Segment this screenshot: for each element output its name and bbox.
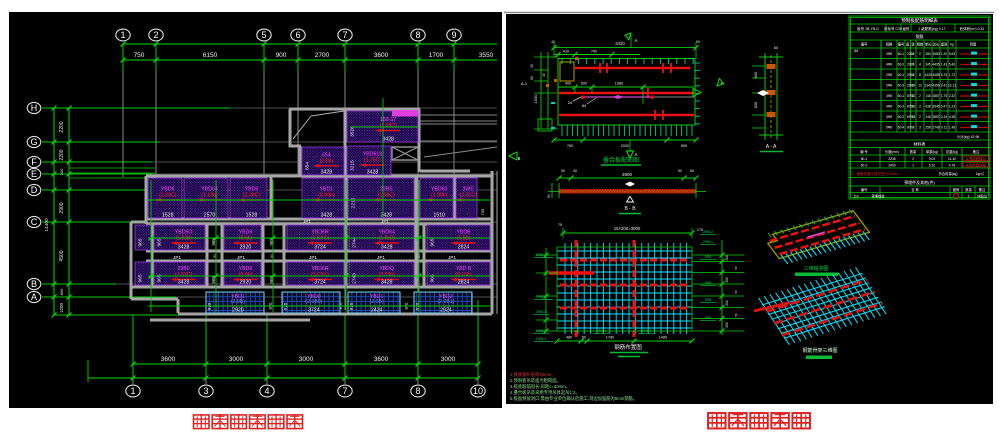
svg-text:4.38: 4.38 [949, 115, 955, 119]
svg-text:(8.6b): (8.6b) [239, 272, 253, 278]
svg-text:(1.09b): (1.09b) [431, 192, 448, 198]
svg-text:小计(kg) 42.96: 小计(kg) 42.96 [957, 134, 980, 139]
svg-text:50: 50 [734, 290, 738, 294]
svg-text:60-2: 60-2 [898, 115, 905, 119]
svg-text:3Φ8: 3Φ8 [886, 94, 892, 98]
svg-text:750: 750 [134, 52, 145, 59]
svg-text:(2.0B): (2.0B) [231, 299, 245, 305]
svg-text:8: 8 [415, 30, 420, 40]
svg-text:15×200=3000: 15×200=3000 [614, 226, 641, 231]
svg-text:50: 50 [582, 336, 586, 340]
svg-text:2824: 2824 [458, 280, 470, 286]
svg-text:编号: 编号 [861, 42, 868, 47]
svg-text:900: 900 [276, 52, 287, 59]
svg-text:1.20: 1.20 [941, 52, 947, 56]
svg-text:2: 2 [919, 94, 921, 98]
svg-text:J14: J14 [853, 195, 858, 199]
svg-text:2824: 2824 [458, 245, 470, 251]
svg-text:3000: 3000 [229, 356, 244, 363]
svg-text:1.48: 1.48 [949, 126, 955, 130]
svg-text:5Φ8: 5Φ8 [886, 126, 892, 130]
svg-text:(1.32b): (1.32b) [175, 236, 192, 242]
svg-text:(2.08C): (2.08C) [243, 192, 261, 198]
svg-text:90: 90 [561, 169, 565, 173]
svg-text:12.11: 12.11 [948, 84, 956, 88]
svg-text:2Φ8: 2Φ8 [886, 73, 892, 77]
svg-text:40: 40 [573, 169, 577, 173]
svg-text:2920: 2920 [240, 245, 252, 251]
svg-text:2746: 2746 [932, 126, 939, 130]
svg-text:3215: 3215 [350, 160, 356, 171]
svg-text:1480: 1480 [659, 336, 667, 340]
svg-text:2700: 2700 [315, 52, 330, 59]
svg-text:200: 200 [725, 300, 729, 306]
svg-text:3.板底筋锚固长,间距c=40mm。: 3.板底筋锚固长,间距c=40mm。 [510, 383, 570, 390]
svg-text:5.40: 5.40 [949, 63, 955, 67]
svg-text:10: 10 [473, 386, 483, 396]
svg-text:60: 60 [774, 45, 779, 50]
svg-text:名 称: 名 称 [911, 187, 919, 192]
svg-text:40: 40 [542, 73, 546, 77]
svg-text:60: 60 [530, 76, 534, 80]
svg-text:2Φ8: 2Φ8 [705, 316, 712, 320]
svg-text:5: 5 [913, 52, 915, 56]
svg-text:2Φ8-1: 2Φ8-1 [536, 310, 547, 314]
svg-text:2924: 2924 [440, 308, 452, 314]
svg-text:75: 75 [558, 223, 562, 227]
svg-text:长度(mm): 长度(mm) [885, 149, 899, 154]
svg-text:60-2: 60-2 [861, 163, 868, 167]
svg-text:1: 1 [912, 163, 914, 167]
svg-text:1.板底保护层厚15mm。: 1.板底保护层厚15mm。 [510, 371, 556, 378]
svg-text:60-1: 60-1 [898, 73, 905, 77]
svg-text:(2.0B0): (2.0B0) [305, 299, 322, 305]
svg-text:4560: 4560 [932, 52, 939, 56]
svg-text:JP1: JP1 [237, 255, 245, 260]
svg-text:2Φ8-2: 2Φ8-2 [536, 295, 547, 299]
svg-text:2215: 2215 [351, 197, 357, 208]
svg-text:965: 965 [430, 238, 436, 246]
svg-text:1342: 1342 [924, 84, 931, 88]
svg-text:kg/㎡: kg/㎡ [976, 171, 984, 176]
svg-text:90: 90 [696, 40, 700, 44]
svg-text:1200: 1200 [59, 302, 64, 313]
svg-text:根数: 根数 [917, 42, 924, 47]
svg-text:板号 1B-YB-D: 板号 1B-YB-D [857, 26, 879, 31]
svg-text:40: 40 [551, 40, 555, 44]
svg-text:A: A [635, 38, 638, 43]
svg-text:1780: 1780 [606, 336, 614, 340]
svg-text:2857: 2857 [932, 94, 939, 98]
svg-text:2Φ8: 2Φ8 [705, 281, 712, 285]
svg-text:6150: 6150 [203, 52, 218, 59]
svg-text:2744: 2744 [352, 237, 358, 248]
svg-text:2743: 2743 [352, 273, 358, 284]
svg-text:3000: 3000 [441, 356, 456, 363]
svg-text:965: 965 [430, 274, 436, 282]
svg-text:5: 5 [913, 73, 915, 77]
svg-text:3Φ8: 3Φ8 [886, 115, 892, 119]
svg-text:砼体积(m³) 0.31: 砼体积(m³) 0.31 [960, 26, 985, 31]
svg-text:2900: 2900 [59, 202, 65, 213]
svg-text:(1.32C): (1.32C) [175, 272, 193, 278]
svg-text:11.42: 11.42 [948, 157, 956, 161]
svg-text:2: 2 [912, 157, 914, 161]
svg-text:3428: 3428 [382, 137, 394, 143]
svg-text:详图见: 详图见 [977, 194, 988, 199]
svg-text:5.63: 5.63 [949, 52, 955, 56]
svg-text:编号: 编号 [861, 187, 868, 192]
svg-text:2Φ8-1: 2Φ8-1 [536, 337, 547, 341]
svg-text:3528: 3528 [350, 126, 356, 137]
svg-text:2424: 2424 [371, 308, 383, 314]
svg-text:3600: 3600 [374, 356, 389, 363]
svg-text:1528: 1528 [246, 213, 258, 219]
svg-text:3: 3 [913, 126, 915, 130]
svg-text:重量: 重量 [941, 42, 948, 47]
svg-text:4.78: 4.78 [949, 163, 956, 167]
svg-text:2.32: 2.32 [949, 94, 955, 98]
svg-text:JP1: JP1 [377, 255, 385, 260]
svg-text:60-4: 60-4 [898, 126, 905, 130]
svg-text:345: 345 [925, 63, 931, 67]
svg-text:(2.0B1): (2.0B1) [437, 299, 454, 305]
svg-text:1 级配筋(kg) 9.17: 1 级配筋(kg) 9.17 [918, 26, 945, 31]
svg-text:90: 90 [547, 194, 551, 198]
svg-text:300: 300 [59, 168, 64, 175]
svg-text:3428: 3428 [381, 245, 393, 251]
svg-text:(1.5b): (1.5b) [457, 236, 471, 242]
svg-text:4、钢筋混凝土保护层为15mm: 4、钢筋混凝土保护层为15mm [851, 171, 898, 176]
svg-text:60-1: 60-1 [898, 52, 905, 56]
svg-text:60-1: 60-1 [861, 157, 868, 161]
svg-text:4356: 4356 [932, 84, 939, 88]
svg-text:JP1: JP1 [303, 219, 311, 224]
svg-text:3420: 3420 [615, 41, 625, 46]
svg-text:5: 5 [913, 63, 915, 67]
svg-text:50: 50 [734, 313, 738, 317]
svg-text:2920: 2920 [240, 280, 252, 286]
svg-text:折合用量(kg): 折合用量(kg) [939, 171, 958, 176]
svg-text:预制板配筋明细表: 预制板配筋明细表 [901, 17, 938, 24]
svg-text:A 预制底板02: A 预制底板02 [966, 156, 986, 161]
svg-text:735: 735 [480, 208, 485, 215]
svg-text:60-1: 60-1 [898, 94, 905, 98]
svg-text:B: B [518, 156, 521, 161]
svg-text:14: 14 [912, 84, 916, 88]
svg-text:60-2: 60-2 [898, 63, 905, 67]
svg-text:1.75: 1.75 [941, 94, 947, 98]
svg-text:(8.6b): (8.6b) [239, 236, 253, 242]
svg-text:200: 200 [725, 277, 729, 283]
svg-text:JP1: JP1 [173, 255, 181, 260]
svg-text:2857: 2857 [932, 115, 939, 119]
svg-text:B: B [31, 279, 37, 289]
svg-text:钢筋骨架三维图: 钢筋骨架三维图 [802, 347, 837, 354]
svg-text:2: 2 [968, 195, 970, 199]
svg-text:预埋线盒: 预埋线盒 [871, 194, 885, 199]
svg-text:760: 760 [567, 144, 573, 148]
svg-text:965: 965 [138, 274, 144, 282]
svg-text:4: 4 [919, 63, 921, 67]
svg-text:4Φ8: 4Φ8 [886, 63, 892, 67]
svg-text:3550: 3550 [479, 52, 494, 59]
svg-text:3546: 3546 [932, 105, 939, 109]
svg-text:2Φ8-2: 2Φ8-2 [536, 253, 547, 257]
svg-text:200: 200 [725, 322, 729, 328]
svg-text:编 号: 编 号 [860, 149, 868, 154]
svg-text:2: 2 [919, 115, 921, 119]
svg-text:90: 90 [678, 169, 682, 173]
svg-text:60-2: 60-2 [898, 105, 905, 109]
svg-text:C: C [31, 217, 38, 227]
svg-text:0.47: 0.47 [941, 105, 947, 109]
svg-text:(1.19b): (1.19b) [201, 192, 218, 198]
svg-text:D: D [31, 185, 38, 195]
svg-text:1.43: 1.43 [941, 63, 947, 67]
svg-text:850: 850 [59, 288, 64, 295]
svg-text:1528: 1528 [162, 213, 174, 219]
svg-text:(2.09C): (2.09C) [159, 192, 177, 198]
svg-text:数量: 数量 [910, 149, 917, 154]
svg-text:600: 600 [754, 72, 758, 78]
svg-text:4458: 4458 [932, 73, 939, 77]
svg-text:2: 2 [153, 30, 158, 40]
svg-text:材料表: 材料表 [914, 141, 926, 147]
svg-text:(3.CYL): (3.CYL) [311, 272, 329, 278]
svg-text:(3.15b): (3.15b) [378, 272, 395, 278]
svg-text:2Φ8-2: 2Φ8-2 [703, 230, 713, 234]
svg-text:2: 2 [919, 105, 921, 109]
svg-text:(1.58C): (1.58C) [378, 192, 396, 198]
svg-text:G: G [30, 137, 37, 147]
svg-text:E: E [31, 169, 37, 179]
svg-text:3724: 3724 [308, 308, 320, 314]
svg-text:2200: 2200 [59, 149, 65, 160]
svg-text:5: 5 [261, 30, 266, 40]
svg-text:3000: 3000 [299, 356, 314, 363]
svg-text:2920: 2920 [232, 308, 244, 314]
svg-text:410: 410 [563, 50, 569, 54]
svg-text:14400: 14400 [44, 218, 50, 232]
svg-text:2236: 2236 [888, 157, 896, 161]
svg-text:8: 8 [919, 73, 921, 77]
svg-text:3724: 3724 [314, 245, 326, 251]
svg-text:2: 2 [919, 52, 921, 56]
svg-text:480: 480 [566, 336, 572, 340]
svg-text:A - A: A - A [766, 144, 777, 150]
svg-text:(1.75C): (1.75C) [364, 158, 382, 164]
svg-text:1500: 1500 [533, 94, 538, 104]
svg-text:备注: 备注 [973, 149, 980, 154]
svg-text:3428: 3428 [321, 213, 333, 219]
svg-text:1: 1 [130, 386, 135, 396]
svg-text:简图: 简图 [970, 42, 977, 47]
svg-text:总重(kg): 总重(kg) [946, 149, 958, 154]
svg-text:200: 200 [725, 255, 729, 261]
svg-text:2Φ8-1: 2Φ8-1 [703, 240, 713, 244]
svg-text:9.04: 9.04 [929, 157, 936, 161]
svg-text:(2.0B): (2.0B) [370, 299, 384, 305]
svg-text:50: 50 [734, 266, 738, 270]
svg-text:1: 1 [120, 30, 125, 40]
svg-text:3: 3 [203, 386, 208, 396]
svg-text:1433: 1433 [924, 73, 931, 77]
svg-text:A-1: A-1 [521, 81, 528, 86]
svg-text:3428: 3428 [321, 170, 333, 176]
svg-text:3428: 3428 [178, 245, 190, 251]
svg-text:3428: 3428 [381, 280, 393, 286]
svg-text:F: F [31, 157, 37, 167]
svg-text:5.10: 5.10 [929, 163, 936, 167]
svg-text:14: 14 [912, 115, 916, 119]
svg-text:2400: 2400 [888, 163, 896, 167]
svg-text:3: 3 [919, 126, 921, 130]
svg-text:0.41: 0.41 [941, 84, 947, 88]
svg-text:2000: 2000 [621, 144, 629, 148]
svg-text:4435: 4435 [932, 63, 939, 67]
svg-text:790: 790 [591, 50, 597, 54]
svg-text:2800: 2800 [622, 172, 633, 177]
svg-text:0.11: 0.11 [941, 126, 947, 130]
svg-text:2Φ8-3: 2Φ8-3 [536, 329, 547, 333]
svg-text:JP1: JP1 [309, 255, 317, 260]
svg-text:40: 40 [530, 64, 534, 68]
svg-text:1.73: 1.73 [949, 73, 955, 77]
svg-text:7: 7 [342, 30, 347, 40]
svg-text:叠合板配筋图: 叠合板配筋图 [603, 156, 639, 164]
svg-text:(1.0b2): (1.0b2) [378, 236, 395, 242]
svg-text:钢筋: 钢筋 [916, 33, 924, 39]
svg-text:钢筋布置图: 钢筋布置图 [614, 343, 642, 351]
svg-text:24: 24 [568, 101, 572, 105]
svg-text:2570: 2570 [204, 213, 216, 219]
svg-text:JM: JM [854, 49, 859, 53]
svg-text:A 叠合现浇层: A 叠合现浇层 [966, 162, 987, 167]
svg-text:1700: 1700 [429, 52, 444, 59]
svg-text:级别: 级别 [903, 26, 910, 31]
svg-text:5.板面预留洞口,需由专业单位确认后施工,洞边加强筋为8mm: 5.板面预留洞口,需由专业单位确认后施工,洞边加强筋为8mm钢筋。 [510, 395, 637, 402]
svg-text:5.75: 5.75 [941, 73, 947, 77]
svg-text:4Φ8: 4Φ8 [886, 105, 892, 109]
svg-text:单长: 单长 [925, 42, 932, 47]
svg-text:965: 965 [138, 238, 144, 246]
svg-text:600: 600 [581, 82, 587, 86]
svg-text:1380: 1380 [615, 82, 623, 86]
svg-text:800: 800 [681, 144, 687, 148]
svg-text:280: 280 [925, 52, 931, 56]
svg-text:1510: 1510 [433, 213, 445, 219]
svg-text:12: 12 [918, 84, 922, 88]
svg-text:12: 12 [912, 94, 916, 98]
svg-text:8: 8 [415, 386, 420, 396]
svg-text:6: 6 [295, 30, 300, 40]
svg-text:3600: 3600 [374, 52, 389, 59]
svg-text:600: 600 [754, 102, 758, 108]
svg-text:3428: 3428 [178, 280, 190, 286]
svg-text:预埋件及其他(件): 预埋件及其他(件) [904, 179, 935, 185]
svg-text:(2.0b): (2.0b) [320, 158, 334, 164]
svg-text:数量: 数量 [965, 187, 972, 192]
svg-text:A: A [31, 292, 37, 302]
svg-text:84: 84 [582, 104, 586, 108]
svg-text:7: 7 [342, 386, 347, 396]
svg-text:图例: 图例 [953, 187, 960, 192]
svg-text:965: 965 [157, 238, 163, 246]
svg-text:2Φ8: 2Φ8 [886, 84, 892, 88]
svg-text:A: A [634, 152, 637, 157]
svg-text:2.预制板吊装面为粗糙面。: 2.预制板吊装面为粗糙面。 [510, 377, 561, 384]
svg-text:编号: 编号 [898, 42, 905, 47]
svg-text:12: 12 [912, 105, 916, 109]
svg-text:(1.CYC): (1.CYC) [311, 236, 330, 242]
svg-text:4Φ8: 4Φ8 [886, 52, 892, 56]
svg-text:3428: 3428 [381, 213, 393, 219]
svg-text:2Φ8-1: 2Φ8-1 [641, 329, 652, 333]
svg-text:60-3: 60-3 [898, 84, 905, 88]
svg-text:2Φ8: 2Φ8 [705, 298, 712, 302]
svg-text:H: H [31, 103, 38, 113]
svg-text:(0.99b): (0.99b) [318, 192, 335, 198]
svg-text:654: 654 [305, 162, 311, 170]
svg-text:单重(kg): 单重(kg) [926, 149, 938, 154]
svg-text:3724: 3724 [314, 280, 326, 286]
svg-text:258: 258 [925, 126, 931, 130]
svg-text:B - B: B - B [624, 206, 636, 212]
svg-text:JP1: JP1 [448, 255, 456, 260]
svg-text:备注: 备注 [979, 187, 986, 192]
svg-text:(2.01C): (2.01C) [460, 192, 478, 198]
svg-text:4.叠合板吊装采用专用吊具起吊1:2。: 4.叠合板吊装采用专用吊具起吊1:2。 [510, 389, 580, 396]
svg-text:JP1: JP1 [381, 219, 389, 224]
svg-text:638: 638 [925, 105, 931, 109]
svg-text:146: 146 [925, 94, 931, 98]
svg-text:400: 400 [565, 82, 571, 86]
svg-text:3428: 3428 [367, 170, 379, 176]
svg-text:1.23: 1.23 [949, 105, 955, 109]
svg-text:总长: 总长 [933, 42, 940, 47]
svg-text:965: 965 [157, 274, 163, 282]
svg-text:2200: 2200 [59, 121, 65, 132]
svg-text:2.44: 2.44 [941, 115, 947, 119]
svg-text:7Φ8-1: 7Φ8-1 [596, 329, 607, 333]
svg-text:(8.15b): (8.15b) [455, 272, 472, 278]
svg-text:2Φ8: 2Φ8 [705, 255, 712, 259]
svg-text:9: 9 [451, 30, 456, 40]
svg-text:kg: kg [950, 43, 954, 47]
svg-text:三维轴测图: 三维轴测图 [803, 265, 828, 272]
svg-text:(1.08C): (1.08C) [380, 123, 398, 129]
svg-text:4500: 4500 [59, 250, 65, 261]
svg-text:砼标号 C30: 砼标号 C30 [884, 26, 902, 31]
svg-text:规格: 规格 [886, 42, 893, 47]
svg-text:80: 80 [690, 169, 694, 173]
svg-text:4: 4 [264, 386, 269, 396]
svg-text:3600: 3600 [161, 356, 176, 363]
svg-text:146: 146 [925, 115, 931, 119]
